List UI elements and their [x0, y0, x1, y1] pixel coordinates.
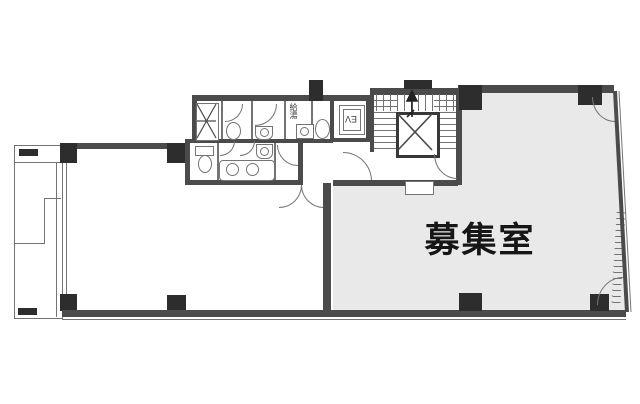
floor-plan: EV 募集室 給湯: [0, 0, 640, 404]
west-wall-line: [66, 148, 67, 311]
landing-door-arc: [434, 154, 457, 179]
annex-line: [14, 162, 61, 163]
stall-door-arc: [220, 141, 235, 156]
left-room-door-arc: [279, 185, 302, 208]
sink-bowl: [300, 127, 309, 136]
south-wall-outer-line: [62, 319, 626, 320]
hall-south-wall: [333, 180, 458, 186]
column: [309, 80, 323, 101]
elevator-label: EV: [339, 105, 363, 133]
duct-notch: [405, 181, 434, 195]
annex-wall-bar: [18, 308, 37, 315]
toilet: [198, 155, 212, 173]
basin-bowl: [260, 147, 269, 156]
block-east-wall-lower: [298, 139, 303, 185]
kitchenette-label: 給湯: [287, 103, 299, 131]
column: [167, 143, 186, 163]
annex-line: [56, 162, 57, 317]
column: [167, 295, 186, 311]
ev-south-wall: [330, 138, 371, 142]
vacant-room-label: 募集室: [398, 214, 562, 260]
column: [459, 293, 482, 311]
annex-line: [14, 243, 45, 244]
column: [60, 143, 77, 163]
stall-door-arc: [255, 104, 277, 126]
annex-line: [44, 198, 61, 199]
slop-sink: [315, 119, 330, 139]
stall-door-arc: [277, 145, 298, 166]
left-room-door-arc: [301, 185, 324, 208]
vacant-west-wall: [323, 183, 331, 312]
basin-bowl: [246, 163, 259, 176]
ev-north-wall: [333, 95, 370, 101]
stall-door-arc: [240, 141, 255, 156]
stall-door-arc: [225, 104, 243, 122]
annex-wall-bar: [19, 149, 38, 156]
stall-partition: [284, 101, 286, 139]
stall-partition: [251, 101, 253, 139]
basin-bowl: [260, 128, 269, 137]
column: [459, 85, 482, 110]
roof-stub: [404, 80, 432, 89]
hall-door-arc: [343, 152, 372, 181]
column: [60, 294, 77, 311]
pipe-shaft: [196, 103, 219, 141]
block-east-wall-upper: [330, 95, 334, 142]
west-wall-line: [62, 148, 63, 311]
annex-line: [44, 198, 45, 244]
toilet: [226, 122, 241, 140]
block-west-wall: [185, 139, 190, 185]
south-wall: [62, 310, 626, 317]
stall-partition: [221, 101, 223, 139]
basin-bowl: [226, 163, 239, 176]
stair-treads-left: [374, 100, 398, 152]
stair-void: [396, 112, 440, 158]
